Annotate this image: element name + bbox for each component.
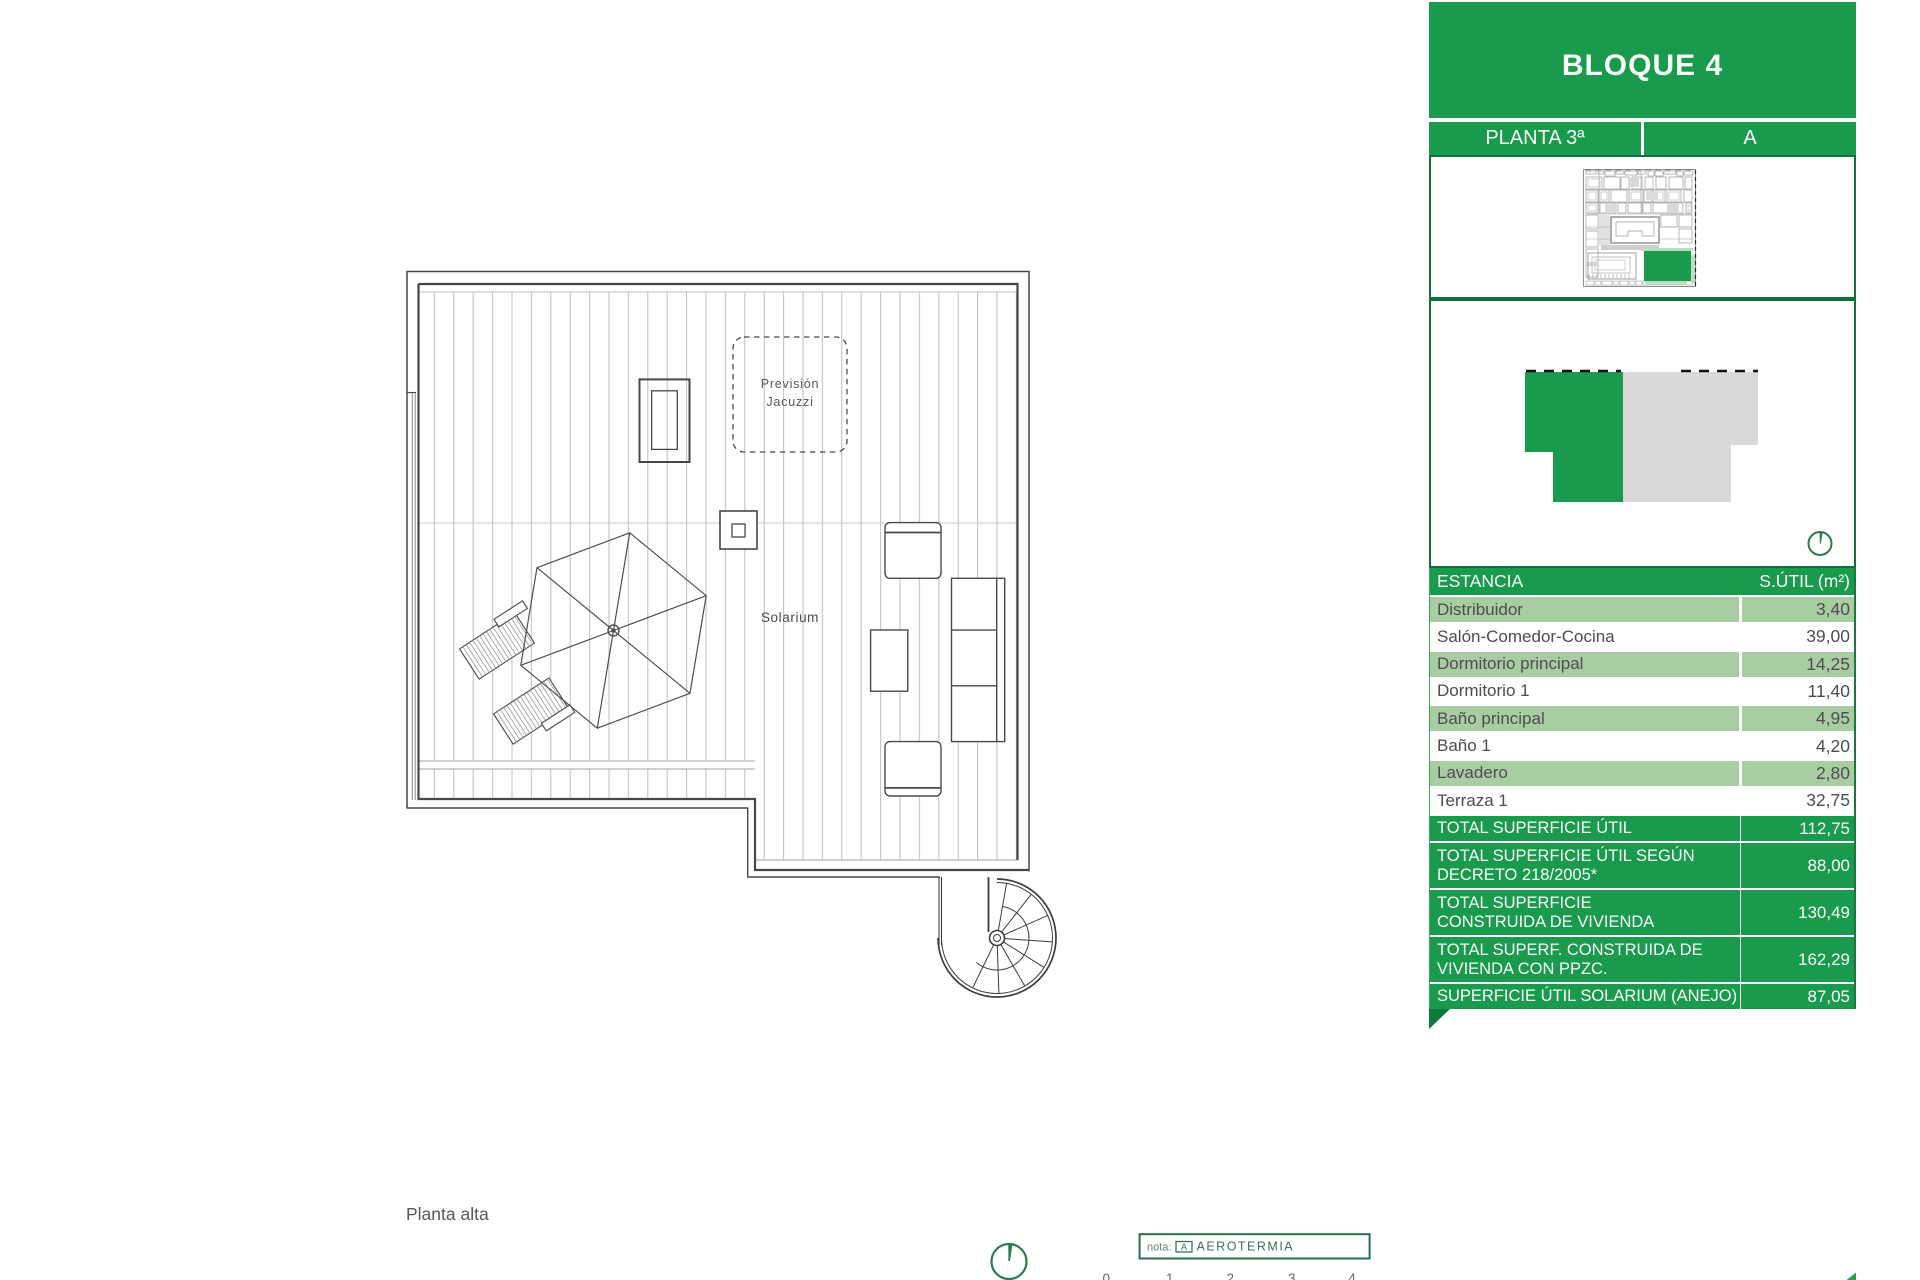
svg-text:nota:: nota: bbox=[1147, 1242, 1171, 1254]
svg-text:Solarium: Solarium bbox=[761, 610, 819, 625]
svg-text:Previsión: Previsión bbox=[761, 377, 820, 391]
svg-text:3: 3 bbox=[1288, 1271, 1296, 1280]
svg-text:AEROTERMIA: AEROTERMIA bbox=[1197, 1240, 1295, 1254]
svg-text:2: 2 bbox=[1226, 1271, 1234, 1280]
svg-text:1: 1 bbox=[1166, 1271, 1174, 1280]
svg-text:Jacuzzi: Jacuzzi bbox=[766, 395, 813, 409]
svg-text:4: 4 bbox=[1348, 1271, 1356, 1280]
svg-text:Planta alta: Planta alta bbox=[406, 1204, 489, 1224]
svg-text:A: A bbox=[1181, 1242, 1187, 1252]
svg-text:0: 0 bbox=[1103, 1271, 1111, 1280]
